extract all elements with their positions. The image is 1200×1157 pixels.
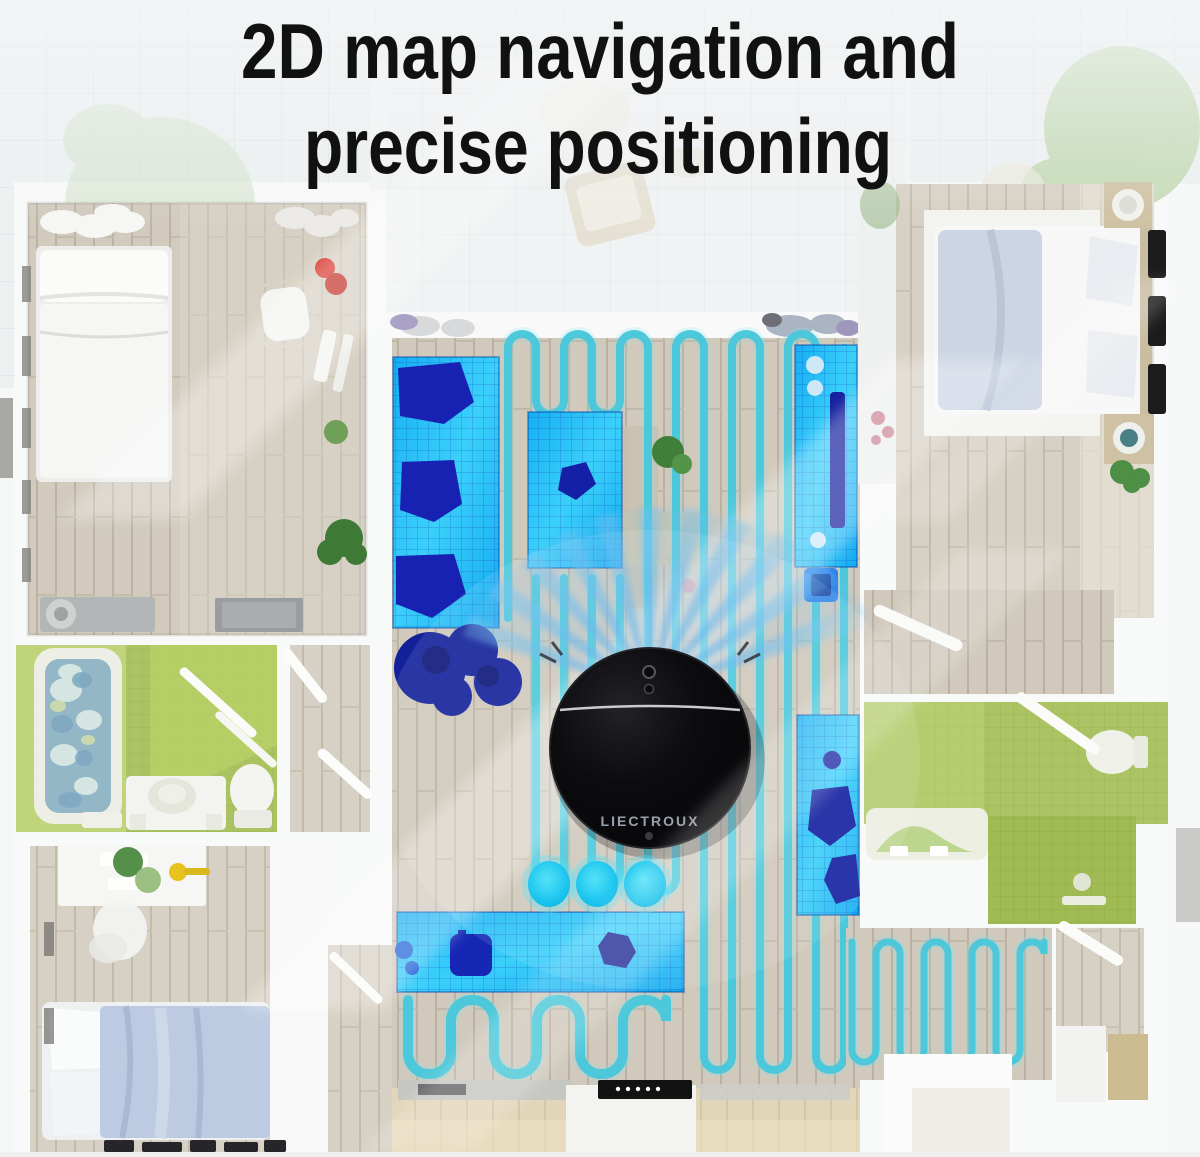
svg-text:2D map navigation and: 2D map navigation and bbox=[241, 7, 959, 95]
svg-text:precise positioning: precise positioning bbox=[304, 102, 892, 190]
